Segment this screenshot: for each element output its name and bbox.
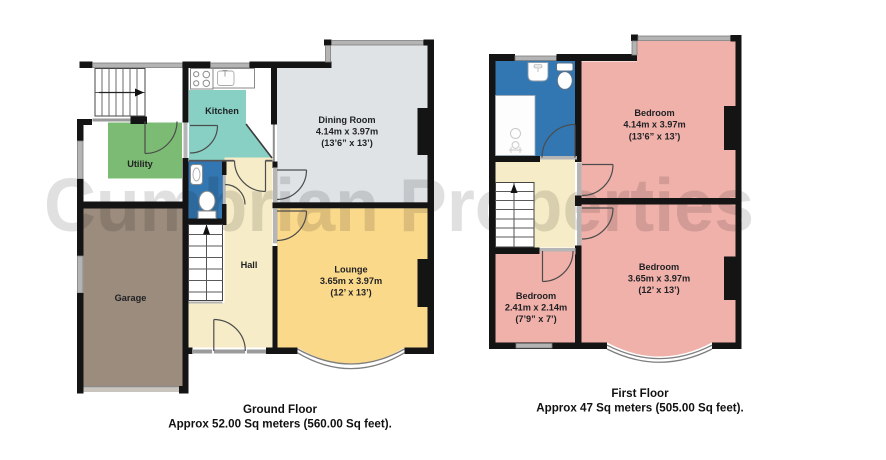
svg-text:Approx 47 Sq meters (505.00 Sq: Approx 47 Sq meters (505.00 Sq feet). (536, 402, 743, 415)
svg-text:Kitchen: Kitchen (205, 106, 239, 116)
svg-text:Bedroom: Bedroom (639, 262, 679, 272)
svg-text:3.65m x 3.97m: 3.65m x 3.97m (628, 274, 690, 284)
svg-text:First Floor: First Floor (611, 387, 669, 400)
svg-text:(13’6” x 13’): (13’6” x 13’) (321, 138, 373, 148)
svg-text:Garage: Garage (115, 293, 147, 303)
svg-text:Ground Floor: Ground Floor (243, 403, 318, 416)
svg-text:Approx 52.00 Sq meters (560.00: Approx 52.00 Sq meters (560.00 Sq feet). (168, 418, 392, 431)
svg-text:4.14m x 3.97m: 4.14m x 3.97m (316, 127, 378, 137)
svg-text:Utility: Utility (127, 159, 153, 169)
svg-text:Hall: Hall (241, 260, 258, 270)
svg-text:4.14m x 3.97m: 4.14m x 3.97m (623, 120, 685, 130)
svg-text:3.65m x 3.97m: 3.65m x 3.97m (320, 276, 382, 286)
svg-text:Bedroom: Bedroom (634, 108, 674, 118)
svg-text:(13’6” x 13’): (13’6” x 13’) (629, 132, 681, 142)
svg-text:(12’ x 13’): (12’ x 13’) (638, 285, 679, 295)
svg-text:Lounge: Lounge (334, 265, 367, 275)
svg-text:(7’9” x 7’): (7’9” x 7’) (515, 314, 556, 324)
svg-text:Bedroom: Bedroom (516, 291, 556, 301)
svg-text:2.41m x 2.14m: 2.41m x 2.14m (505, 303, 567, 313)
svg-text:Dining Room: Dining Room (318, 115, 375, 125)
svg-text:(12’ x 13’): (12’ x 13’) (330, 288, 371, 298)
